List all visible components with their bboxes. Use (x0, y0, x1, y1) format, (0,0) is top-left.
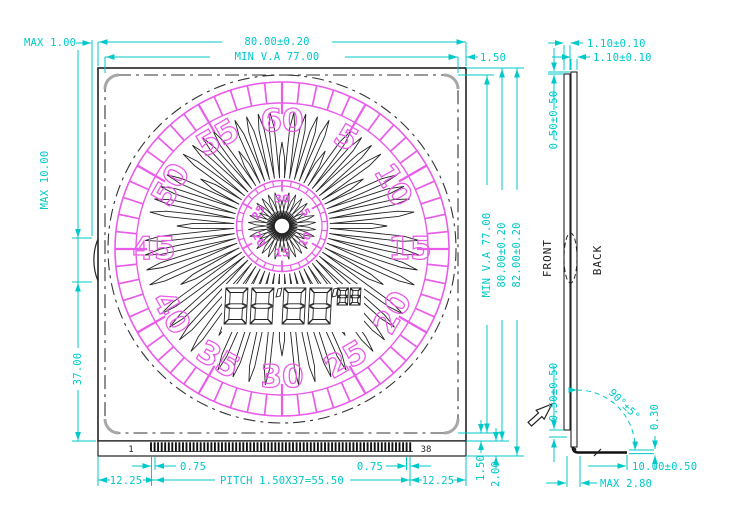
dim-width: 80.00±0.20 (244, 36, 309, 48)
dim-va-bottom: 1.50 (475, 455, 487, 481)
dim-pitch: PITCH 1.50X37=55.50 (220, 475, 344, 487)
dim-max10: MAX 10.00 (39, 151, 51, 210)
front-label: FRONT (541, 239, 554, 277)
back-glass (571, 72, 577, 447)
dim-pin-margin-left: 12.25 (110, 475, 143, 487)
dim-glass1: 1.10±0.10 (587, 38, 646, 50)
dim-pin-thickness: 0.30 (649, 404, 661, 430)
pin-number-first: 1 (128, 445, 133, 455)
seven-segment-digit (226, 304, 246, 309)
seven-segment-digit (310, 304, 330, 309)
dial-number: 30 (260, 359, 303, 395)
dim-offset-top: 0.50±0.50 (548, 91, 560, 150)
seven-segment-digit (338, 295, 347, 298)
lcd-panel-drawing: 1 38 6051015202530354045505530510152025 … (0, 0, 730, 509)
seven-segment-digit (284, 304, 304, 309)
dial-number: 15 (388, 231, 431, 267)
pin-number-last: 38 (421, 445, 432, 455)
dim-strip-height: 2.00 (490, 461, 502, 487)
front-view: 1 38 6051015202530354045505530510152025 (94, 68, 466, 456)
dim-total-height: 82.00±0.20 (511, 222, 523, 287)
dim-half-pitch-right: 0.75 (357, 461, 383, 473)
dial-number: 45 (132, 231, 175, 267)
dim-right-margin: 1.50 (480, 52, 506, 64)
dim-half-pitch-left: 0.75 (180, 461, 206, 473)
dim-va-width: MIN V.A 77.00 (235, 51, 320, 63)
dim-offset-bottom: 0.50±0.50 (548, 363, 560, 422)
dim-height: 80.00±0.20 (496, 222, 508, 287)
dial-number: 60 (260, 103, 303, 139)
seven-segment-digit (351, 295, 360, 298)
bend-joint (573, 448, 577, 452)
dim-bend-angle: 90°±5° (606, 387, 642, 423)
dim-va-height: MIN V.A 77.00 (481, 213, 493, 298)
subdial-number: 30 (274, 193, 290, 206)
dim-max28: MAX 2.80 (600, 478, 652, 490)
drawing-canvas: 1 38 6051015202530354045505530510152025 … (0, 0, 730, 509)
seven-segment-digit (252, 304, 272, 309)
dim-glass2: 1.10±0.10 (593, 52, 652, 64)
back-label: BACK (591, 245, 604, 276)
front-glass (564, 74, 570, 430)
dim-pin-length: 10.00±0.50 (632, 461, 697, 473)
dim-pin-margin-right: 12.25 (422, 475, 455, 487)
subdial-number: 15 (274, 247, 289, 260)
dim-max1: MAX 1.00 (24, 37, 76, 49)
dim-37: 37.00 (72, 353, 84, 386)
